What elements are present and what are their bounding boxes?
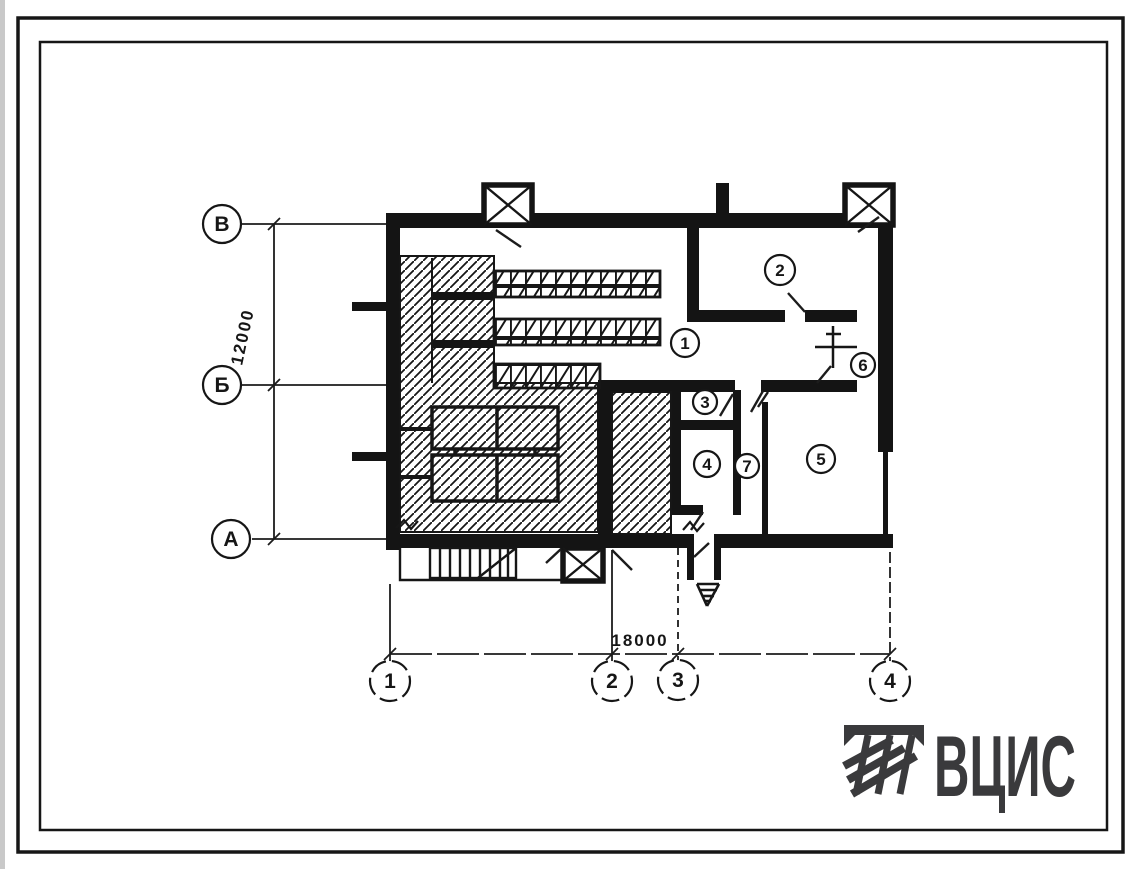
wall-room34-right bbox=[733, 390, 741, 515]
scanned-floor-plan-sheet: В Б А 1 2 3 4 12000 18000 bbox=[0, 0, 1139, 869]
shelf-rack-3 bbox=[494, 364, 600, 388]
logo-text: ВЦИС bbox=[934, 719, 1076, 815]
door-top-left bbox=[496, 230, 521, 247]
hatched-mid-strip bbox=[612, 392, 671, 534]
logo-column-icon bbox=[844, 725, 924, 794]
door-lobby bbox=[694, 543, 709, 557]
wall-mid-horizontal-a bbox=[598, 380, 735, 392]
axis-label-col-1: 1 bbox=[384, 670, 396, 693]
shaft-top-right bbox=[845, 185, 893, 225]
entry-lobby-wall-right bbox=[714, 534, 721, 580]
stairs-bottom-left bbox=[400, 548, 563, 580]
axis-label-row-v: В bbox=[214, 213, 229, 236]
shelf-rack-2 bbox=[494, 319, 660, 345]
wall-mid-horizontal-b bbox=[761, 380, 857, 392]
dim-text-horizontal: 18000 bbox=[611, 631, 668, 650]
row-axis-bubbles: В Б А bbox=[203, 205, 250, 558]
wall-bottom-left bbox=[386, 534, 687, 548]
entry-lobby-wall-left bbox=[687, 534, 694, 580]
door-room3 bbox=[720, 394, 733, 416]
room-label-3: 3 bbox=[700, 393, 709, 412]
stair-walk-line bbox=[478, 548, 516, 578]
axis-label-row-a: А bbox=[223, 528, 238, 551]
wall-room34-left bbox=[671, 383, 681, 515]
wall-room1-room2 bbox=[687, 226, 699, 314]
dim-text-vertical: 12000 bbox=[227, 307, 257, 367]
room-label-4: 4 bbox=[702, 455, 712, 474]
logo: ВЦИС bbox=[844, 719, 1076, 815]
room-label-5: 5 bbox=[816, 450, 825, 469]
door-stairhall bbox=[546, 549, 561, 563]
wall-top bbox=[386, 213, 893, 228]
wall-section-marks bbox=[352, 302, 386, 461]
axis-label-col-2: 2 bbox=[606, 670, 618, 693]
room-label-1: 1 bbox=[680, 334, 689, 353]
wall-right-upper bbox=[878, 213, 893, 452]
scan-edge-strip bbox=[0, 0, 5, 869]
door-room2 bbox=[788, 293, 805, 312]
wall-room2-bottom-b bbox=[805, 310, 857, 322]
shaft-bottom bbox=[563, 548, 603, 581]
door-entry bbox=[612, 550, 632, 570]
break-symbol-entry bbox=[683, 522, 704, 531]
wall-room4-bottom bbox=[679, 505, 703, 515]
shelf-rack-1 bbox=[494, 271, 660, 297]
wall-room2-bottom-a bbox=[687, 310, 785, 322]
wall-room3-bottom bbox=[679, 420, 735, 430]
floor-plan-drawing: В Б А 1 2 3 4 12000 18000 bbox=[0, 0, 1139, 869]
wall-corridor-room5 bbox=[762, 402, 768, 536]
column-axis-bubbles: 1 2 3 4 bbox=[370, 660, 910, 701]
shelving-racks bbox=[494, 271, 660, 388]
room-label-2: 2 bbox=[775, 261, 784, 280]
room-labels: 1 2 3 4 5 6 7 bbox=[671, 255, 875, 478]
shaft-top-left bbox=[484, 185, 532, 225]
axis-label-col-3: 3 bbox=[672, 669, 684, 692]
wall-top-stub bbox=[716, 183, 729, 214]
room-label-6: 6 bbox=[858, 356, 867, 375]
wall-bottom-right bbox=[721, 534, 893, 548]
wall-right-window-section bbox=[883, 452, 888, 536]
axis-label-col-4: 4 bbox=[884, 670, 896, 693]
room-label-7: 7 bbox=[742, 457, 751, 476]
wall-left bbox=[386, 213, 400, 550]
wall-hall-divider bbox=[598, 383, 612, 534]
axis-label-row-b: Б bbox=[214, 374, 229, 397]
entrance-steps bbox=[697, 584, 719, 606]
